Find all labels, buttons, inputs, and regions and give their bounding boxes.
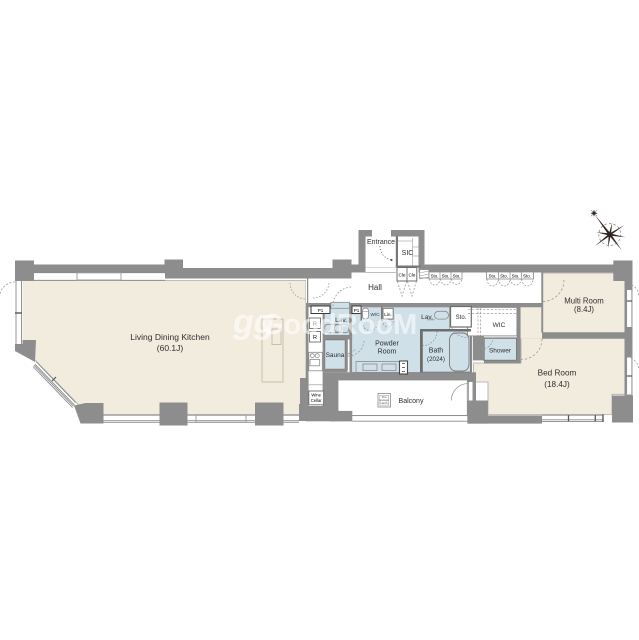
svg-text:Powder: Powder [375,341,399,348]
svg-text:Sto.: Sto. [523,274,531,279]
svg-text:Sto.: Sto. [453,274,461,279]
svg-text:(60.1J): (60.1J) [157,343,184,353]
svg-text:Sto.: Sto. [456,315,467,321]
svg-text:Sto.: Sto. [442,274,450,279]
svg-text:Wine: Wine [311,393,321,398]
svg-text:Living Dining Kitchen: Living Dining Kitchen [130,332,210,342]
svg-text:Sto.: Sto. [500,274,508,279]
svg-text:Balcony: Balcony [399,398,424,405]
svg-text:Sto.: Sto. [431,274,439,279]
svg-text:Bed Room: Bed Room [538,369,577,378]
svg-text:(8.4J): (8.4J) [574,305,594,314]
svg-text:Sauna: Sauna [326,352,345,359]
svg-text:Cle: Cle [399,273,406,278]
svg-text:Entrance: Entrance [367,239,395,246]
svg-text:Room: Room [378,349,397,356]
svg-text:Bath: Bath [429,348,444,355]
svg-text:WIC: WIC [493,322,506,329]
svg-text:Cellar: Cellar [311,398,323,403]
svg-text:(18.4J): (18.4J) [544,380,570,389]
svg-text:Hatch: Hatch [381,401,389,405]
svg-text:Sto.: Sto. [512,274,520,279]
svg-text:Shower: Shower [489,348,512,355]
svg-text:SIC: SIC [402,250,414,257]
svg-text:Hall: Hall [368,283,382,292]
svg-text:Cle: Cle [409,273,416,278]
svg-text:(2024): (2024) [427,356,445,363]
svg-text:Lav.: Lav. [421,314,433,321]
svg-text:GoodRooM: GoodRooM [261,309,417,341]
svg-text:Sto.: Sto. [489,274,497,279]
